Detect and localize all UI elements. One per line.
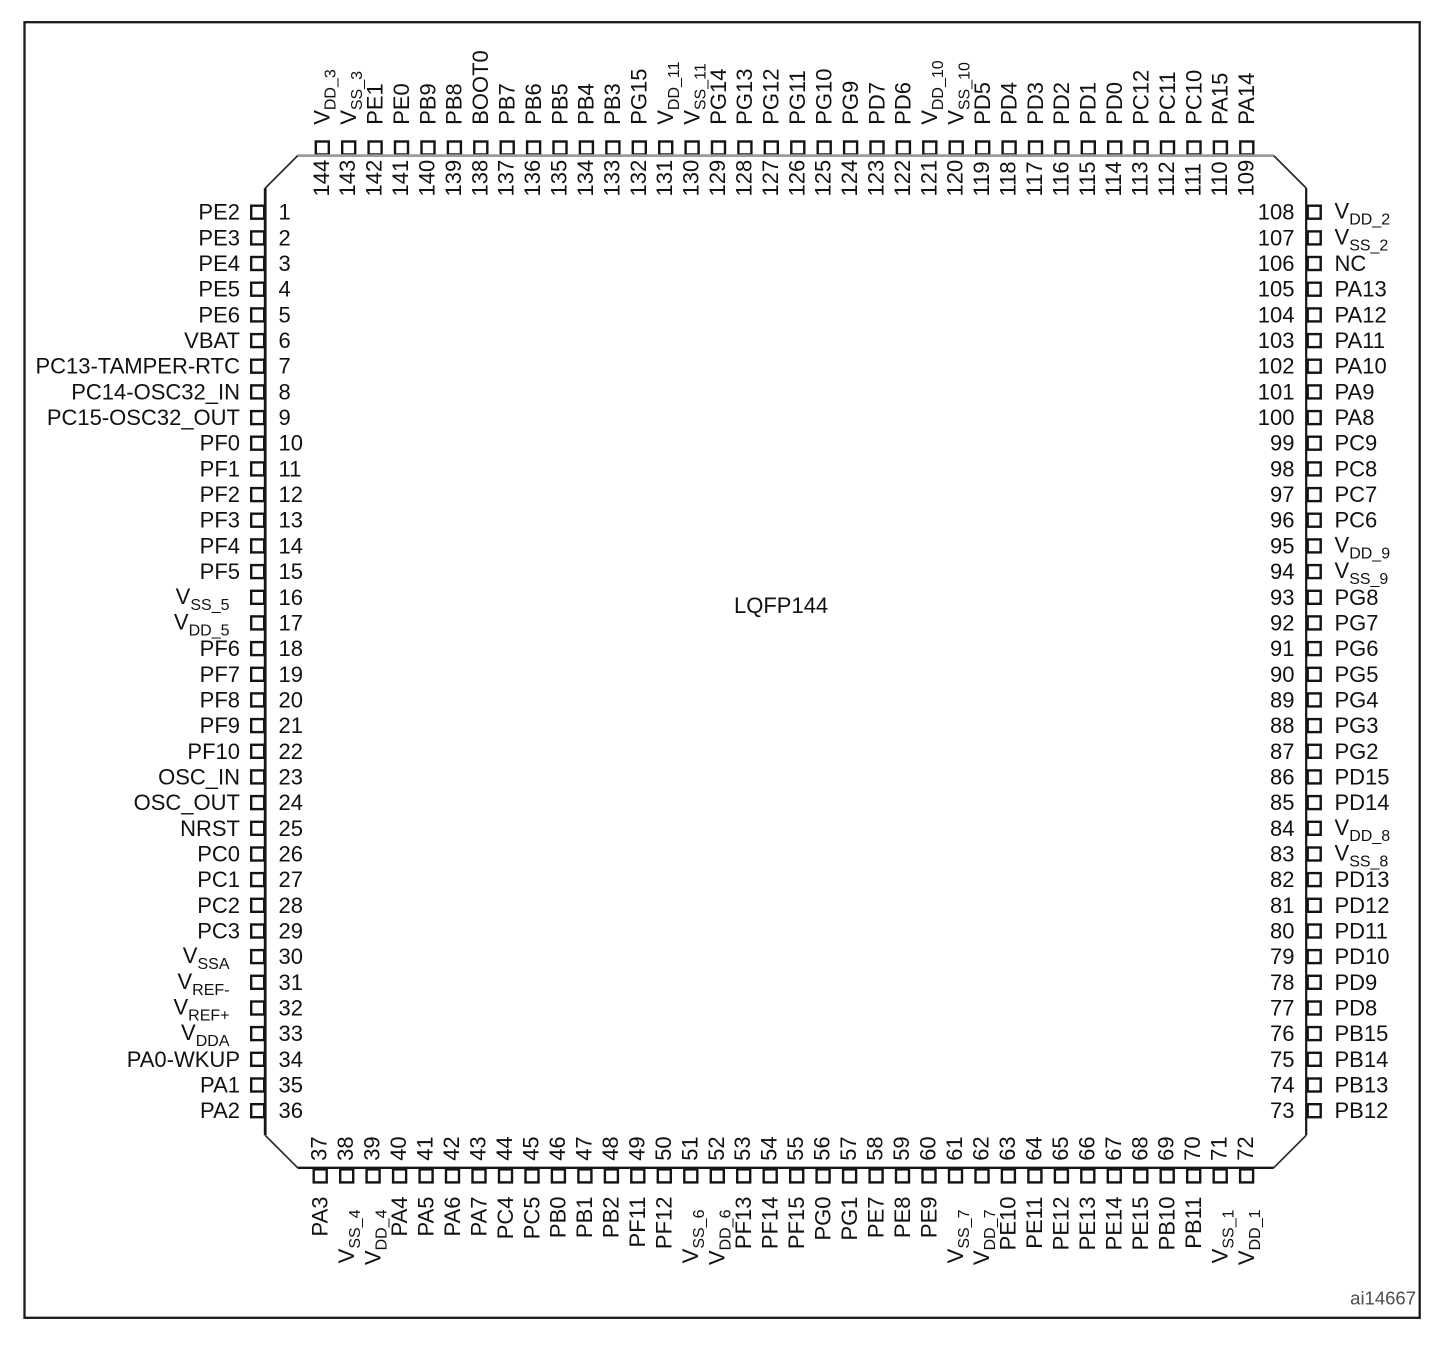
- svg-text:35: 35: [279, 1073, 303, 1098]
- svg-text:59: 59: [889, 1136, 914, 1160]
- svg-text:PC15-OSC32_OUT: PC15-OSC32_OUT: [47, 405, 240, 430]
- svg-text:PD14: PD14: [1335, 790, 1390, 815]
- svg-text:PA12: PA12: [1335, 302, 1387, 327]
- svg-text:142: 142: [362, 160, 387, 197]
- svg-text:133: 133: [599, 160, 624, 197]
- svg-text:128: 128: [731, 160, 756, 197]
- svg-text:91: 91: [1270, 636, 1294, 661]
- svg-text:49: 49: [624, 1136, 649, 1160]
- svg-text:PD13: PD13: [1335, 867, 1390, 892]
- svg-text:PE10: PE10: [996, 1197, 1021, 1251]
- svg-text:140: 140: [415, 160, 440, 197]
- svg-text:32: 32: [279, 996, 303, 1021]
- svg-text:44: 44: [492, 1136, 517, 1160]
- svg-text:63: 63: [995, 1136, 1020, 1160]
- svg-text:141: 141: [388, 160, 413, 197]
- svg-text:62: 62: [969, 1136, 994, 1160]
- svg-text:PB11: PB11: [1181, 1197, 1206, 1249]
- svg-text:106: 106: [1258, 251, 1295, 276]
- svg-text:PB0: PB0: [546, 1197, 571, 1239]
- svg-text:PB12: PB12: [1335, 1098, 1389, 1123]
- svg-text:PF13: PF13: [731, 1197, 756, 1250]
- svg-text:76: 76: [1270, 1021, 1294, 1046]
- svg-text:8: 8: [279, 379, 291, 404]
- svg-text:134: 134: [573, 160, 598, 197]
- svg-text:25: 25: [279, 816, 303, 841]
- svg-text:PD1: PD1: [1076, 82, 1101, 125]
- svg-text:PD6: PD6: [891, 82, 916, 125]
- svg-text:80: 80: [1270, 919, 1294, 944]
- svg-text:12: 12: [279, 482, 303, 507]
- svg-text:PD4: PD4: [996, 82, 1021, 125]
- svg-text:118: 118: [996, 161, 1021, 196]
- svg-text:PB1: PB1: [572, 1197, 597, 1239]
- svg-text:PC1: PC1: [197, 867, 240, 892]
- svg-text:111: 111: [1181, 163, 1206, 196]
- svg-text:104: 104: [1258, 302, 1295, 327]
- svg-text:BOOT0: BOOT0: [468, 50, 493, 125]
- svg-text:124: 124: [837, 160, 862, 197]
- svg-text:50: 50: [651, 1136, 676, 1160]
- svg-text:PC0: PC0: [197, 842, 240, 867]
- svg-text:138: 138: [467, 160, 492, 197]
- svg-text:15: 15: [279, 559, 303, 584]
- svg-text:PA13: PA13: [1335, 277, 1387, 302]
- svg-text:11: 11: [279, 456, 302, 481]
- svg-text:94: 94: [1270, 559, 1294, 584]
- svg-text:PE1: PE1: [362, 83, 387, 125]
- svg-text:PC9: PC9: [1335, 431, 1378, 456]
- svg-text:PF9: PF9: [200, 713, 240, 738]
- svg-text:75: 75: [1270, 1047, 1294, 1072]
- svg-text:103: 103: [1258, 328, 1295, 353]
- svg-text:53: 53: [730, 1136, 755, 1160]
- svg-text:84: 84: [1270, 816, 1294, 841]
- svg-text:131: 131: [652, 160, 677, 197]
- svg-text:95: 95: [1270, 533, 1294, 558]
- svg-text:VBAT: VBAT: [184, 328, 240, 353]
- svg-text:PA5: PA5: [413, 1197, 438, 1237]
- svg-text:PC12: PC12: [1128, 70, 1153, 125]
- svg-text:115: 115: [1075, 161, 1100, 196]
- svg-text:56: 56: [810, 1136, 835, 1160]
- svg-text:18: 18: [279, 636, 303, 661]
- svg-text:36: 36: [279, 1098, 303, 1123]
- svg-text:42: 42: [439, 1136, 464, 1160]
- svg-text:88: 88: [1270, 713, 1294, 738]
- svg-text:31: 31: [279, 970, 303, 995]
- svg-text:85: 85: [1270, 790, 1294, 815]
- svg-text:PA3: PA3: [308, 1197, 333, 1237]
- svg-text:PF8: PF8: [200, 687, 240, 712]
- svg-text:43: 43: [466, 1136, 491, 1160]
- svg-text:PB7: PB7: [495, 83, 520, 125]
- svg-text:46: 46: [545, 1136, 570, 1160]
- svg-text:144: 144: [309, 160, 334, 197]
- svg-text:OSC_IN: OSC_IN: [158, 764, 240, 789]
- svg-text:PG4: PG4: [1335, 687, 1379, 712]
- svg-text:PA0-WKUP: PA0-WKUP: [127, 1047, 240, 1072]
- svg-text:PD9: PD9: [1335, 970, 1378, 995]
- svg-text:PF2: PF2: [200, 482, 240, 507]
- svg-text:PC11: PC11: [1155, 71, 1180, 124]
- svg-text:PF0: PF0: [200, 431, 240, 456]
- svg-text:30: 30: [279, 944, 303, 969]
- svg-text:54: 54: [757, 1136, 782, 1160]
- svg-text:PG0: PG0: [810, 1197, 835, 1241]
- svg-text:126: 126: [784, 160, 809, 197]
- svg-text:6: 6: [279, 328, 291, 353]
- svg-text:PB14: PB14: [1335, 1047, 1389, 1072]
- svg-text:7: 7: [279, 354, 291, 379]
- svg-text:26: 26: [279, 842, 303, 867]
- svg-text:PE0: PE0: [389, 83, 414, 125]
- svg-text:PD12: PD12: [1335, 893, 1390, 918]
- svg-text:57: 57: [836, 1136, 861, 1160]
- svg-text:66: 66: [1074, 1136, 1099, 1160]
- svg-text:99: 99: [1270, 431, 1294, 456]
- svg-text:55: 55: [783, 1136, 808, 1160]
- svg-text:PD8: PD8: [1335, 996, 1378, 1021]
- svg-text:PC2: PC2: [197, 893, 240, 918]
- svg-text:47: 47: [571, 1136, 596, 1160]
- svg-text:29: 29: [279, 919, 303, 944]
- svg-text:34: 34: [279, 1047, 303, 1072]
- svg-text:PF4: PF4: [200, 533, 240, 558]
- svg-text:78: 78: [1270, 970, 1294, 995]
- svg-text:22: 22: [279, 739, 303, 764]
- svg-text:PA1: PA1: [200, 1073, 240, 1098]
- svg-text:4: 4: [279, 277, 291, 302]
- svg-text:127: 127: [758, 160, 783, 197]
- svg-text:PE9: PE9: [916, 1197, 941, 1239]
- svg-text:51: 51: [677, 1136, 702, 1160]
- svg-text:64: 64: [1021, 1136, 1046, 1160]
- svg-text:PA4: PA4: [387, 1197, 412, 1237]
- svg-text:PB3: PB3: [600, 83, 625, 125]
- svg-text:PE13: PE13: [1075, 1197, 1100, 1251]
- svg-text:82: 82: [1270, 867, 1294, 892]
- svg-text:PC14-OSC32_IN: PC14-OSC32_IN: [71, 379, 240, 404]
- svg-text:PA9: PA9: [1335, 379, 1375, 404]
- svg-text:PG10: PG10: [812, 69, 837, 125]
- svg-text:117: 117: [1022, 161, 1047, 196]
- svg-text:PF5: PF5: [200, 559, 240, 584]
- svg-text:PD3: PD3: [1023, 82, 1048, 125]
- svg-text:119: 119: [969, 161, 994, 196]
- svg-text:PF15: PF15: [784, 1197, 809, 1250]
- svg-text:38: 38: [333, 1136, 358, 1160]
- svg-text:69: 69: [1154, 1136, 1179, 1160]
- svg-text:PF12: PF12: [652, 1197, 677, 1250]
- svg-text:83: 83: [1270, 842, 1294, 867]
- svg-text:135: 135: [547, 160, 572, 197]
- svg-text:PF6: PF6: [200, 636, 240, 661]
- svg-text:PC8: PC8: [1335, 456, 1378, 481]
- svg-text:101: 101: [1258, 379, 1295, 404]
- svg-text:PE11: PE11: [1022, 1197, 1047, 1249]
- svg-text:136: 136: [520, 160, 545, 197]
- svg-text:PG5: PG5: [1335, 662, 1379, 687]
- svg-text:122: 122: [890, 160, 915, 197]
- svg-text:61: 61: [942, 1136, 967, 1160]
- svg-text:PB8: PB8: [442, 83, 467, 125]
- svg-text:109: 109: [1233, 160, 1258, 197]
- svg-text:121: 121: [916, 160, 941, 197]
- svg-text:PE14: PE14: [1102, 1197, 1127, 1251]
- svg-text:143: 143: [335, 160, 360, 197]
- svg-text:123: 123: [864, 160, 889, 197]
- svg-text:37: 37: [307, 1136, 332, 1160]
- svg-text:139: 139: [441, 160, 466, 197]
- svg-text:90: 90: [1270, 662, 1294, 687]
- svg-text:PA2: PA2: [200, 1098, 240, 1123]
- svg-text:OSC_OUT: OSC_OUT: [134, 790, 240, 815]
- svg-text:PD10: PD10: [1335, 944, 1390, 969]
- svg-text:92: 92: [1270, 610, 1294, 635]
- svg-text:PE8: PE8: [890, 1197, 915, 1239]
- svg-text:77: 77: [1270, 996, 1294, 1021]
- svg-text:PA6: PA6: [440, 1197, 465, 1237]
- svg-text:39: 39: [360, 1136, 385, 1160]
- svg-text:PB6: PB6: [521, 83, 546, 125]
- svg-text:PB5: PB5: [547, 83, 572, 125]
- svg-text:PD7: PD7: [864, 82, 889, 125]
- svg-text:PD11: PD11: [1335, 919, 1388, 944]
- svg-text:28: 28: [279, 893, 303, 918]
- svg-text:81: 81: [1270, 893, 1294, 918]
- svg-text:PB4: PB4: [574, 83, 599, 125]
- svg-text:125: 125: [811, 160, 836, 197]
- svg-text:60: 60: [916, 1136, 941, 1160]
- svg-text:PF14: PF14: [758, 1197, 783, 1250]
- svg-text:20: 20: [279, 687, 303, 712]
- svg-text:93: 93: [1270, 585, 1294, 610]
- svg-text:68: 68: [1127, 1136, 1152, 1160]
- svg-text:74: 74: [1270, 1073, 1294, 1098]
- svg-text:PC7: PC7: [1335, 482, 1378, 507]
- svg-text:PF3: PF3: [200, 508, 240, 533]
- svg-text:PG12: PG12: [759, 69, 784, 125]
- svg-text:ai14667: ai14667: [1350, 1288, 1416, 1309]
- svg-text:LQFP144: LQFP144: [734, 593, 828, 618]
- svg-text:113: 113: [1128, 161, 1153, 196]
- svg-text:PG9: PG9: [838, 81, 863, 125]
- svg-text:21: 21: [279, 713, 303, 738]
- svg-text:97: 97: [1270, 482, 1294, 507]
- svg-text:33: 33: [279, 1021, 303, 1046]
- svg-text:14: 14: [279, 533, 303, 558]
- svg-text:PC13-TAMPER-RTC: PC13-TAMPER-RTC: [35, 354, 240, 379]
- svg-text:PD5: PD5: [970, 82, 995, 125]
- svg-text:PG7: PG7: [1335, 610, 1379, 635]
- svg-text:110: 110: [1207, 161, 1232, 196]
- svg-text:PG15: PG15: [627, 69, 652, 125]
- svg-text:PA14: PA14: [1234, 73, 1259, 125]
- svg-text:24: 24: [279, 790, 303, 815]
- svg-text:PG8: PG8: [1335, 585, 1379, 610]
- svg-text:PC6: PC6: [1335, 508, 1378, 533]
- svg-text:2: 2: [279, 225, 291, 250]
- svg-text:58: 58: [863, 1136, 888, 1160]
- svg-text:PE3: PE3: [198, 225, 240, 250]
- svg-text:PE12: PE12: [1049, 1197, 1074, 1251]
- svg-text:40: 40: [386, 1136, 411, 1160]
- svg-text:PG13: PG13: [732, 69, 757, 125]
- svg-text:PE5: PE5: [198, 277, 240, 302]
- svg-text:PF11: PF11: [625, 1197, 650, 1248]
- svg-text:13: 13: [279, 508, 303, 533]
- svg-text:PE4: PE4: [198, 251, 240, 276]
- svg-text:98: 98: [1270, 456, 1294, 481]
- svg-text:PE2: PE2: [198, 200, 240, 225]
- svg-text:PF1: PF1: [200, 456, 240, 481]
- svg-text:137: 137: [494, 160, 519, 197]
- svg-text:107: 107: [1258, 225, 1295, 250]
- svg-text:65: 65: [1048, 1136, 1073, 1160]
- svg-text:132: 132: [626, 160, 651, 197]
- svg-text:PC10: PC10: [1181, 70, 1206, 125]
- svg-text:PE6: PE6: [198, 302, 240, 327]
- svg-text:9: 9: [279, 405, 291, 430]
- svg-text:73: 73: [1270, 1098, 1294, 1123]
- svg-text:PB13: PB13: [1335, 1073, 1389, 1098]
- svg-text:87: 87: [1270, 739, 1294, 764]
- svg-text:PG3: PG3: [1335, 713, 1379, 738]
- svg-text:PB2: PB2: [599, 1197, 624, 1239]
- svg-text:41: 41: [413, 1136, 438, 1160]
- svg-text:52: 52: [704, 1136, 729, 1160]
- svg-text:86: 86: [1270, 764, 1294, 789]
- svg-text:PA7: PA7: [466, 1197, 491, 1237]
- svg-text:89: 89: [1270, 687, 1294, 712]
- svg-text:19: 19: [279, 662, 303, 687]
- svg-text:PD2: PD2: [1049, 82, 1074, 125]
- svg-text:10: 10: [279, 431, 303, 456]
- svg-text:PA15: PA15: [1208, 73, 1233, 125]
- svg-text:102: 102: [1258, 354, 1295, 379]
- svg-text:PA8: PA8: [1335, 405, 1375, 430]
- svg-text:PB15: PB15: [1335, 1021, 1389, 1046]
- svg-text:96: 96: [1270, 508, 1294, 533]
- svg-text:NRST: NRST: [180, 816, 240, 841]
- svg-text:PG14: PG14: [706, 69, 731, 125]
- svg-text:PA11: PA11: [1335, 328, 1386, 353]
- svg-text:45: 45: [519, 1136, 544, 1160]
- svg-text:1: 1: [279, 200, 291, 225]
- svg-text:67: 67: [1101, 1136, 1126, 1160]
- svg-text:79: 79: [1270, 944, 1294, 969]
- svg-text:105: 105: [1258, 277, 1295, 302]
- svg-text:16: 16: [279, 585, 303, 610]
- svg-text:114: 114: [1101, 161, 1126, 196]
- svg-text:PB9: PB9: [415, 83, 440, 125]
- svg-text:PE7: PE7: [863, 1197, 888, 1239]
- svg-text:PG6: PG6: [1335, 636, 1379, 661]
- svg-text:108: 108: [1258, 200, 1295, 225]
- svg-text:PG1: PG1: [837, 1197, 862, 1241]
- svg-text:3: 3: [279, 251, 291, 276]
- svg-text:100: 100: [1258, 405, 1295, 430]
- svg-text:112: 112: [1154, 161, 1179, 196]
- svg-text:PB10: PB10: [1155, 1197, 1180, 1251]
- svg-text:PA10: PA10: [1335, 354, 1387, 379]
- svg-text:120: 120: [943, 160, 968, 197]
- svg-text:PE15: PE15: [1128, 1197, 1153, 1251]
- svg-text:48: 48: [598, 1136, 623, 1160]
- svg-text:71: 71: [1207, 1136, 1232, 1160]
- svg-text:PG11: PG11: [785, 70, 810, 125]
- svg-text:5: 5: [279, 302, 291, 327]
- svg-text:NC: NC: [1335, 251, 1367, 276]
- svg-text:72: 72: [1233, 1136, 1258, 1160]
- svg-text:PD15: PD15: [1335, 764, 1390, 789]
- svg-text:130: 130: [679, 160, 704, 197]
- svg-text:PC5: PC5: [519, 1197, 544, 1240]
- svg-text:PF7: PF7: [200, 662, 240, 687]
- svg-text:23: 23: [279, 764, 303, 789]
- svg-text:27: 27: [279, 867, 303, 892]
- svg-text:PC4: PC4: [493, 1197, 518, 1240]
- svg-text:PG2: PG2: [1335, 739, 1379, 764]
- svg-text:PC3: PC3: [197, 919, 240, 944]
- svg-text:17: 17: [279, 610, 303, 635]
- svg-text:70: 70: [1180, 1136, 1205, 1160]
- svg-text:PD0: PD0: [1102, 82, 1127, 125]
- svg-text:129: 129: [705, 160, 730, 197]
- svg-text:PF10: PF10: [187, 739, 240, 764]
- svg-text:116: 116: [1048, 161, 1073, 196]
